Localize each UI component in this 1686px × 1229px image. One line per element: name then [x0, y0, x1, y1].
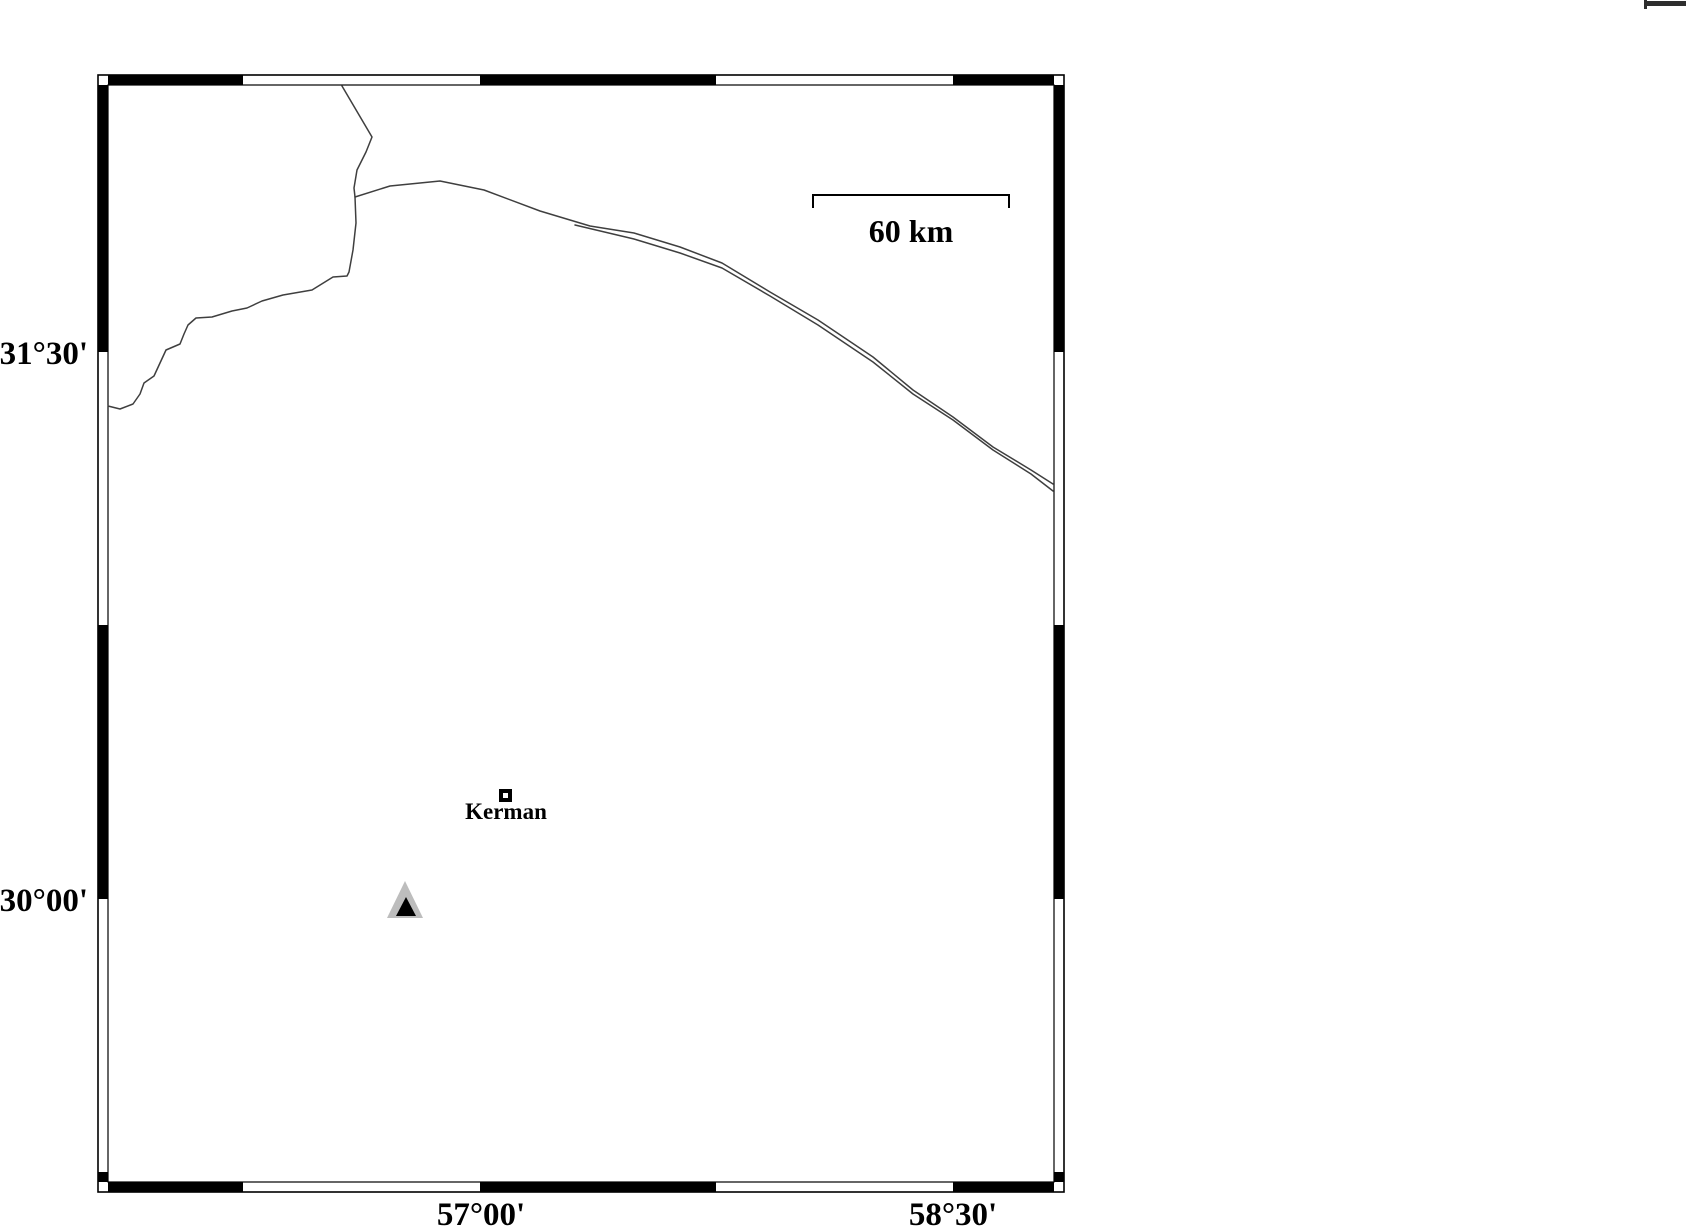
cropped-neighbor-frame-corner: [1644, 0, 1686, 9]
lon-label-5830: 58°30': [909, 1197, 997, 1229]
lat-label-3130: 31°30': [0, 336, 88, 372]
frame-inner-rect: [108, 85, 1054, 1182]
map-figure: 60 km Kerman 31°30' 30°00' 57°00' 58°30': [0, 0, 1686, 1229]
lon-label-5700: 57°00': [437, 1197, 525, 1229]
lat-label-3000: 30°00': [0, 883, 88, 919]
city-square-marker-core: [503, 793, 508, 798]
scale-bar-label: 60 km: [869, 213, 954, 249]
city-label: Kerman: [465, 799, 547, 824]
